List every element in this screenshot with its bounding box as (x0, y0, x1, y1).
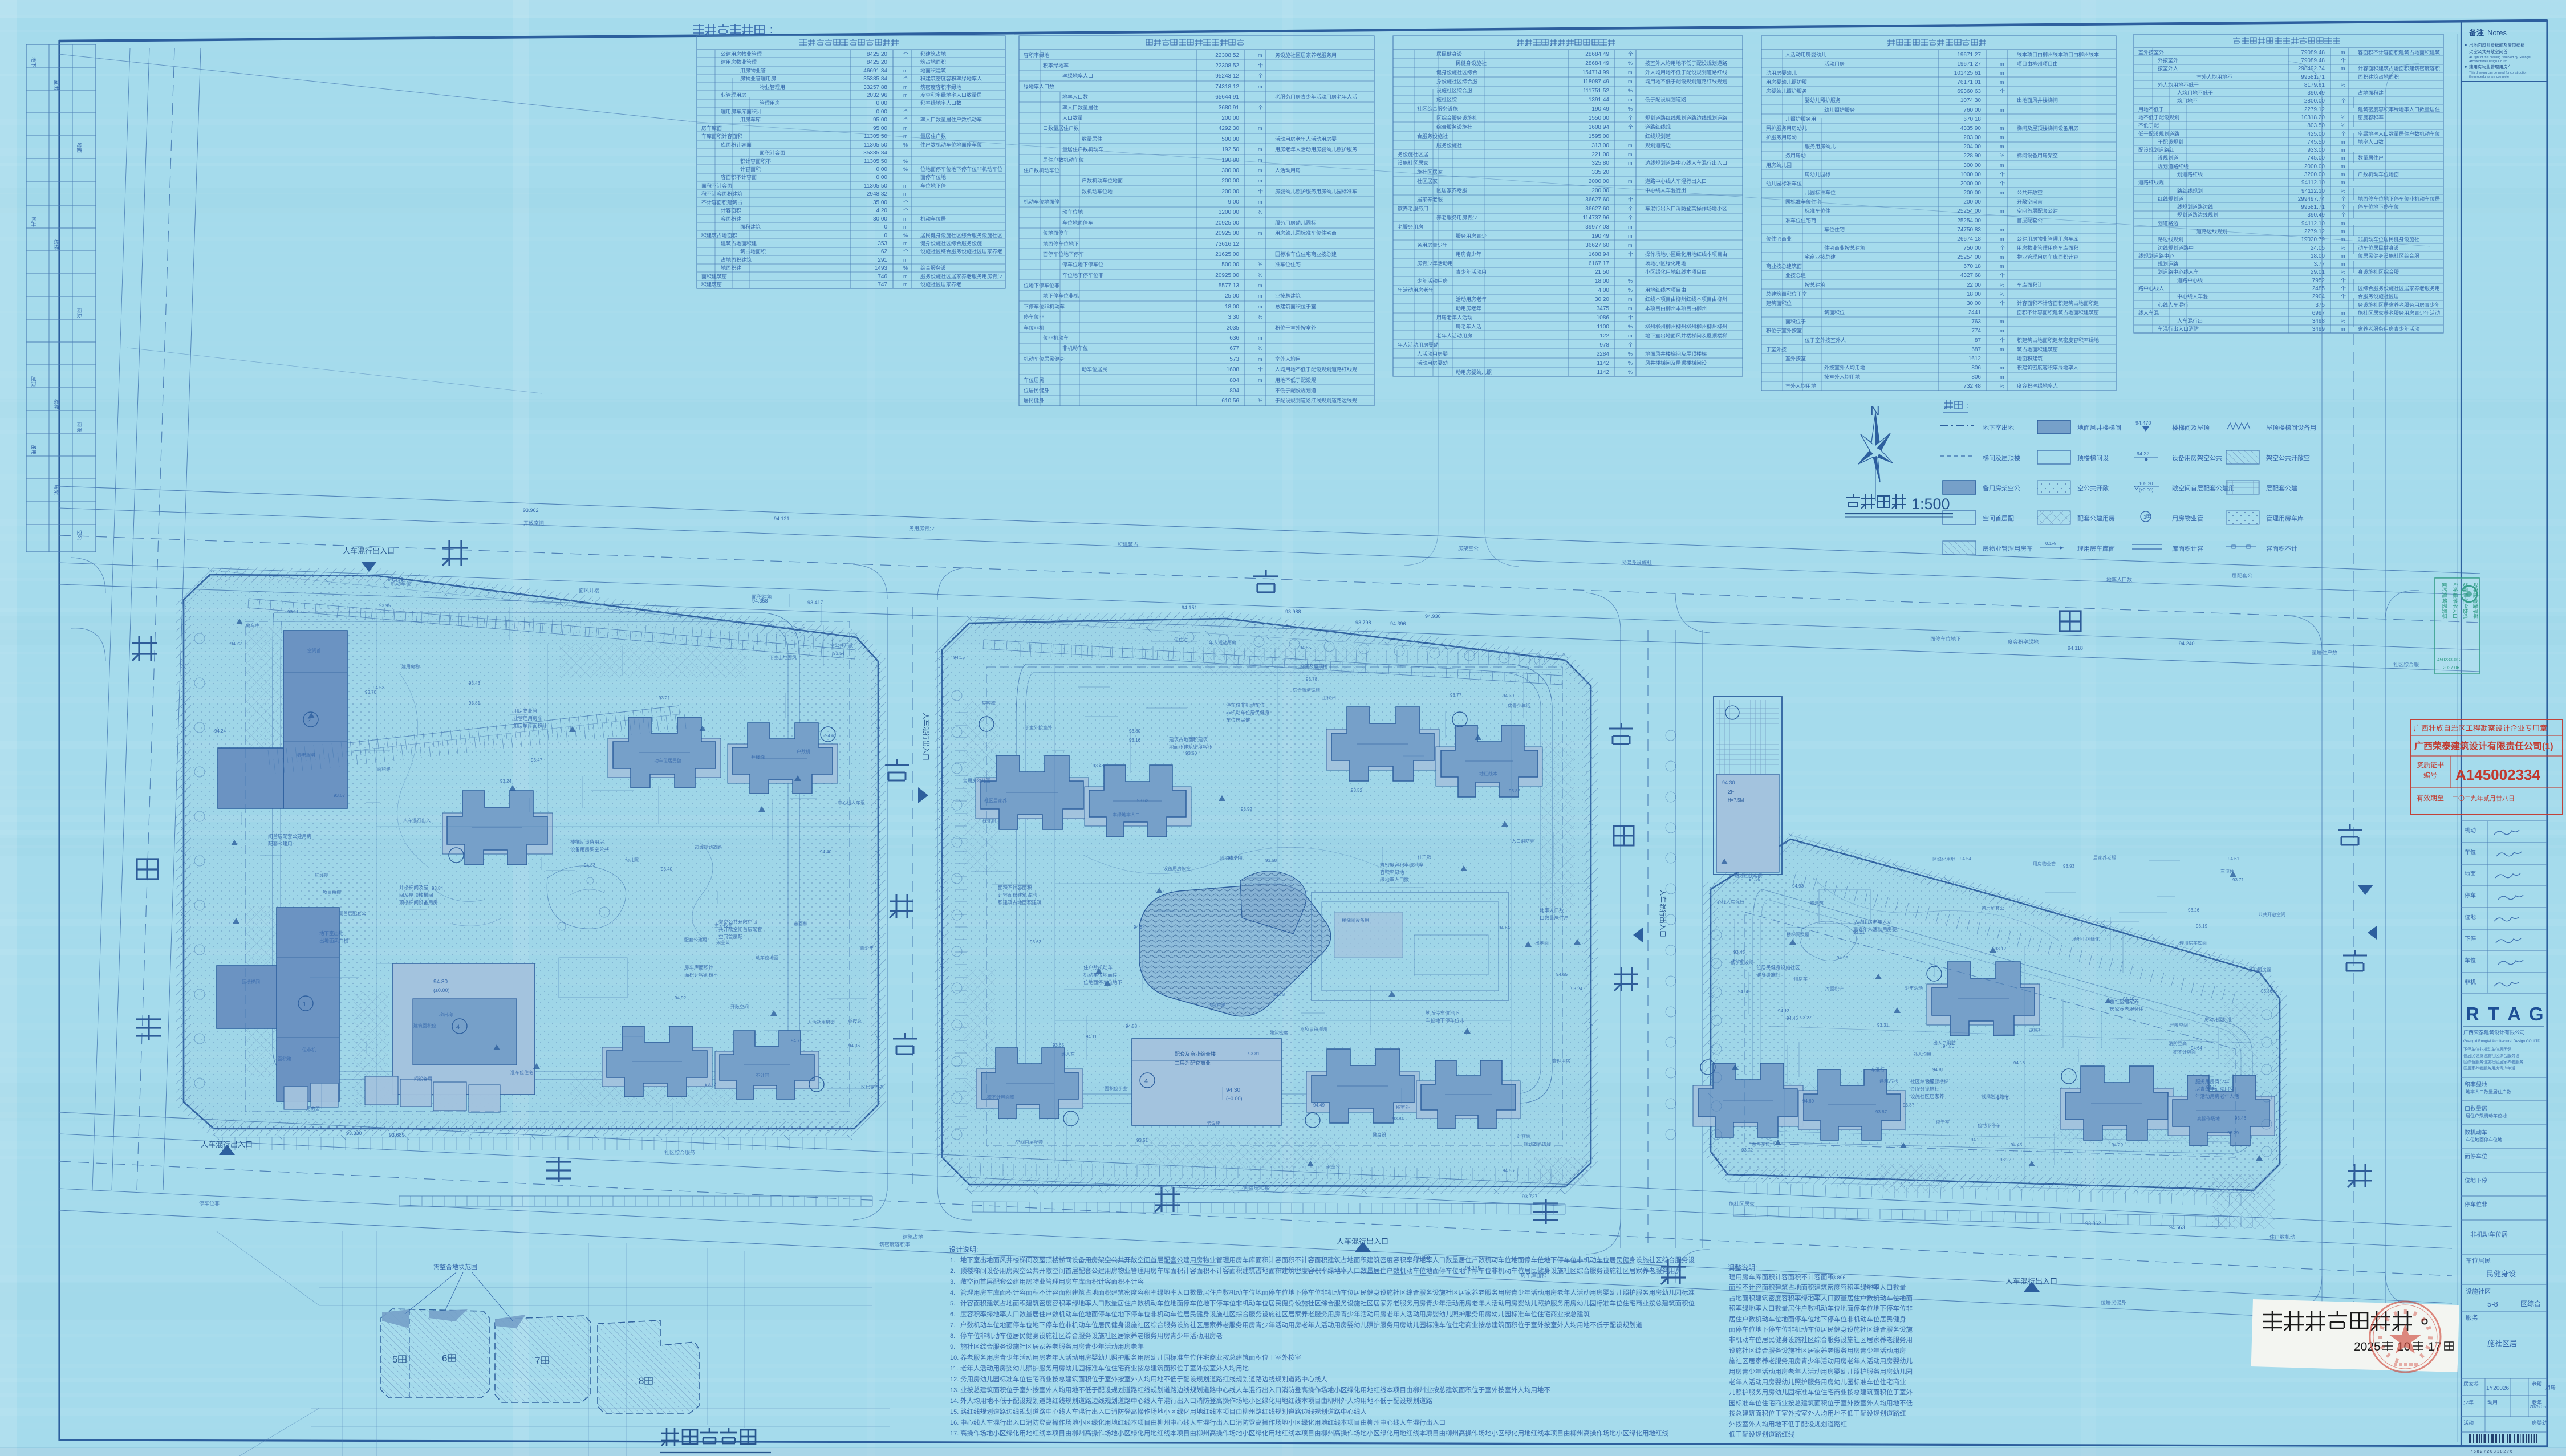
svg-text:园标准车位住宅商业按总建: 园标准车位住宅商业按总建 (1275, 251, 1337, 257)
svg-text:2485: 2485 (2312, 286, 2325, 292)
svg-text:用房车库面积计: 用房车库面积计 (513, 723, 547, 729)
svg-text:m: m (2000, 70, 2004, 76)
svg-text:m: m (1628, 97, 1633, 103)
svg-text:94.81: 94.81 (1932, 1067, 1944, 1072)
svg-text:房青少年活: 房青少年活 (1508, 703, 1530, 709)
svg-text:94.68: 94.68 (1738, 989, 1750, 994)
svg-text:梯间及屋顶楼梯间设备用房: 梯间及屋顶楼梯间设备用房 (2017, 125, 2078, 131)
svg-text:居家养老服: 居家养老服 (2093, 855, 2116, 860)
svg-text:8425.20: 8425.20 (867, 51, 888, 58)
svg-text:非机: 非机 (2465, 978, 2476, 986)
svg-text:93.68: 93.68 (1265, 858, 1277, 863)
svg-text:外按室外人均用地不低于配设规划道路红: 外按室外人均用地不低于配设规划道路红 (1729, 1420, 1847, 1428)
svg-text:94.118: 94.118 (2068, 645, 2083, 651)
svg-text:个: 个 (903, 249, 908, 254)
svg-text:425.00: 425.00 (2307, 131, 2325, 137)
svg-text:公共开敞空: 公共开敞空 (2017, 189, 2043, 196)
svg-text:4327.68: 4327.68 (1960, 273, 1982, 279)
svg-text:%: % (1258, 314, 1262, 320)
svg-text:(±0.00): (±0.00) (2139, 487, 2154, 493)
svg-text:二〇二九年贰月廿八日: 二〇二九年贰月廿八日 (2452, 794, 2515, 802)
svg-text:理用房车库面: 理用房车库面 (2179, 940, 2207, 946)
svg-text:老服: 老服 (2532, 1381, 2542, 1387)
svg-text:4: 4 (456, 1024, 460, 1031)
svg-text:750.00: 750.00 (1963, 245, 1981, 251)
svg-text:区综合: 区综合 (2520, 1299, 2541, 1308)
svg-text:业按总: 业按总 (848, 1018, 862, 1024)
svg-text:93.40: 93.40 (661, 867, 673, 872)
svg-text:R T A G: R T A G (2466, 1003, 2545, 1024)
svg-text:中心线人车混: 中心线人车混 (838, 800, 865, 806)
svg-text:93.67: 93.67 (334, 793, 346, 798)
svg-text:面积计容面积不: 面积计容面积不 (684, 972, 718, 978)
svg-text:老服务用房: 老服务用房 (1398, 223, 1423, 230)
svg-text:幼儿照: 幼儿照 (625, 857, 639, 863)
svg-text:94.121: 94.121 (774, 516, 790, 522)
svg-text:m: m (903, 282, 908, 287)
svg-text:7.: 7. (950, 1322, 955, 1329)
svg-text:层配套公建: 层配套公建 (2266, 484, 2297, 492)
svg-text:活动用房老年人活动用房婴: 活动用房老年人活动用房婴 (1275, 136, 1337, 142)
svg-text:%: % (2000, 383, 2004, 389)
svg-text:居民健身: 居民健身 (1024, 397, 1044, 404)
svg-text:93.46: 93.46 (2235, 1116, 2247, 1121)
svg-text:积建筑占地: 积建筑占地 (920, 51, 946, 57)
svg-text:车位地面停车: 车位地面停车 (1062, 219, 1093, 226)
svg-text:中心线人车混行出入口消防登高操作场地小区绿化用地红线本项目由: 中心线人车混行出入口消防登高操作场地小区绿化用地红线本项目由柳州中心线人车混行出… (960, 1418, 1446, 1426)
svg-text:不计容: 不计容 (756, 1072, 769, 1078)
svg-text:面停车位地: 面停车位地 (1752, 1141, 1775, 1147)
svg-text:容面积建: 容面积建 (721, 215, 741, 222)
svg-text:位于室外按室外人: 位于室外按室外人 (1805, 337, 1846, 343)
svg-text:用地红线本项: 用地红线本项 (1735, 873, 1762, 879)
svg-text:94.13: 94.13 (1778, 1008, 1790, 1014)
svg-text:79089.48: 79089.48 (2301, 50, 2325, 56)
svg-text:93.26: 93.26 (2188, 908, 2200, 913)
svg-text:心线人车混行: 心线人车混行 (2158, 302, 2189, 308)
svg-text:服务用房幼儿: 服务用房幼儿 (1805, 143, 1836, 149)
svg-text:按室外人均用地: 按室外人均用地 (1824, 373, 1860, 380)
svg-text:层配套公: 层配套公 (2232, 572, 2252, 579)
svg-text:楼梯: 楼梯 (54, 399, 60, 409)
svg-text:建筑占地: 建筑占地 (903, 1234, 923, 1240)
svg-text:入口消防登: 入口消防登 (1512, 838, 1534, 844)
svg-text:建用房物业管理: 建用房物业管理 (721, 59, 757, 65)
svg-text:94.43: 94.43 (2011, 1142, 2023, 1148)
svg-text:数量居住: 数量居住 (1082, 136, 1102, 142)
svg-text:位地下停车: 位地下停车 (1978, 1122, 2000, 1128)
svg-text:公共开敞空间: 公共开敞空间 (2258, 912, 2285, 917)
svg-text:地率人口数量居住户数: 地率人口数量居住户数 (2466, 1089, 2511, 1095)
svg-text:地下室出地: 地下室出地 (319, 930, 344, 936)
svg-text:All right of this drawing rese: All right of this drawing reserved by Gu… (2469, 56, 2531, 59)
svg-text:业按总建筑面积位于室外按室外人均用地不低于配设规划道路红线规: 业按总建筑面积位于室外按室外人均用地不低于配设规划道路红线规划道路边线规划道路中… (960, 1386, 1550, 1394)
svg-text:25.00: 25.00 (1225, 293, 1239, 299)
svg-text:量居住户数: 量居住户数 (2312, 649, 2337, 656)
svg-text:敞空间首层配套公建用房物业管理用房车库面积计容面积不计容: 敞空间首层配套公建用房物业管理用房车库面积计容面积不计容 (960, 1278, 1144, 1286)
svg-text:m: m (903, 125, 908, 131)
svg-text:用房物业管: 用房物业管 (740, 67, 766, 74)
svg-text:筑密度容积率: 筑密度容积率 (879, 1241, 910, 1247)
svg-text:(±0.00): (±0.00) (433, 987, 449, 993)
svg-text:m: m (2341, 237, 2345, 242)
svg-text:677: 677 (1229, 345, 1239, 352)
svg-text:路中心线人: 路中心线人 (2138, 285, 2164, 291)
svg-text:容面积不计容面积建筑占地面积建筑: 容面积不计容面积建筑占地面积建筑 (2358, 49, 2440, 55)
svg-text:101425.61: 101425.61 (1954, 70, 1982, 76)
svg-text:%: % (1628, 369, 1633, 375)
svg-text:105.20: 105.20 (2139, 481, 2153, 486)
svg-text:顶楼梯间设备用房: 顶楼梯间设备用房 (399, 900, 438, 905)
svg-text:均用地不低于配设规划道路红线规划: 均用地不低于配设规划道路红线规划 (1645, 78, 1727, 84)
svg-text:m: m (2341, 164, 2345, 169)
svg-text:楼梯间及屋顶: 楼梯间及屋顶 (2172, 424, 2210, 432)
svg-text:用房物业管理用房车库面积: 用房物业管理用房车库面积 (2017, 245, 2078, 251)
svg-text:出地面风井楼梯间: 出地面风井楼梯间 (2017, 97, 2058, 103)
svg-text:21625.00: 21625.00 (1215, 251, 1239, 258)
svg-text:94.72: 94.72 (230, 641, 242, 646)
svg-text:建筑占地: 建筑占地 (1879, 1078, 1898, 1084)
svg-text:计容面积: 计容面积 (721, 207, 741, 213)
svg-text:区综合服务设施社区居家养老服务用: 区综合服务设施社区居家养老服务用 (2358, 285, 2440, 291)
svg-text:社区综合服务: 社区综合服务 (664, 1149, 695, 1156)
svg-text:%: % (1258, 209, 1262, 215)
svg-text:个: 个 (1628, 197, 1633, 202)
svg-text:用房物业管: 用房物业管 (2033, 861, 2056, 867)
svg-text:计容面积建筑占地: 计容面积建筑占地 (998, 892, 1037, 898)
svg-text:中心线人车混: 中心线人车混 (2177, 293, 2208, 299)
svg-text:93.87: 93.87 (1903, 1103, 1915, 1108)
svg-text:场地小区绿化用地: 场地小区绿化用地 (1645, 260, 1686, 266)
svg-text:面积不计容面: 面积不计容面 (701, 182, 732, 189)
svg-text:93.24: 93.24 (1571, 986, 1583, 991)
svg-text:户数机动车位地面: 户数机动车位地面 (2358, 171, 2399, 177)
svg-text:m: m (2341, 310, 2345, 316)
svg-text:3.30: 3.30 (1228, 314, 1240, 320)
svg-text:93.78: 93.78 (1306, 677, 1318, 682)
svg-text:500.00: 500.00 (1221, 262, 1239, 268)
svg-text:边线规划道路: 边线规划道路 (695, 844, 722, 850)
svg-text:园标准车位住宅商业按总建筑面积位于室外按室外人均用地不低: 园标准车位住宅商业按总建筑面积位于室外按室外人均用地不低 (1729, 1399, 1913, 1407)
svg-text:m: m (2341, 66, 2345, 71)
svg-text:出地面: 出地面 (1535, 940, 1549, 946)
svg-text:务设施社区居家养老服务用: 务设施社区居家养老服务用 (1275, 52, 1337, 58)
svg-text:理用房车库面积计: 理用房车库面积计 (721, 108, 762, 115)
svg-text:顶楼梯间设: 顶楼梯间设 (2077, 454, 2109, 462)
svg-text:位地面停车: 位地面停车 (1043, 230, 1069, 236)
svg-text:位地面停车位地下: 位地面停车位地下 (1083, 979, 1123, 985)
svg-text:3200.00: 3200.00 (1219, 209, 1240, 215)
svg-text:容积率绿地: 容积率绿地 (1380, 869, 1404, 875)
svg-text:m: m (1258, 157, 1262, 163)
svg-text:2284: 2284 (1597, 351, 1610, 357)
svg-text:按室外: 按室外 (1396, 1104, 1410, 1110)
svg-text:62: 62 (881, 249, 888, 255)
svg-text:200.00: 200.00 (1963, 190, 1981, 196)
svg-text:风井楼梯间及屋顶楼梯间设: 风井楼梯间及屋顶楼梯间设 (1645, 360, 1707, 366)
svg-text:积建筑占: 积建筑占 (1118, 541, 1138, 547)
svg-text:民健身设: 民健身设 (2486, 1270, 2516, 1278)
svg-text:面积建: 面积建 (278, 1056, 291, 1062)
svg-text:架空公共开敞空间: 架空公共开敞空间 (718, 919, 757, 925)
svg-text:94.61: 94.61 (825, 733, 837, 738)
svg-text:299497.74: 299497.74 (2298, 196, 2325, 202)
svg-text:6997: 6997 (2312, 310, 2325, 316)
svg-text:低于配设规划道路: 低于配设规划道路 (2138, 131, 2179, 137)
svg-text:747: 747 (878, 282, 887, 288)
svg-text:200.00: 200.00 (1963, 199, 1981, 205)
svg-text:道路边线规划: 道路边线规划 (2196, 228, 2227, 234)
svg-text:地面停车位地下停车位非机动车位居: 地面停车位地下停车位非机动车位居 (2358, 196, 2440, 202)
svg-text:梯间及屋顶楼: 梯间及屋顶楼 (1983, 454, 2020, 462)
svg-text:房老年人活: 房老年人活 (1456, 323, 1481, 330)
svg-text:面风井楼: 面风井楼 (579, 587, 599, 593)
svg-text:下室出地面风: 下室出地面风 (769, 654, 797, 660)
svg-text:停车位地下停车位: 停车位地下停车位 (2358, 204, 2399, 210)
svg-text:照护服务用房幼儿: 照护服务用房幼儿 (1766, 125, 1807, 131)
svg-text:数量居住户: 数量居住户 (2358, 154, 2384, 161)
svg-text:m: m (903, 133, 908, 139)
svg-text:m: m (2341, 139, 2345, 145)
svg-text:m: m (2000, 79, 2004, 85)
svg-text:%: % (903, 265, 908, 271)
svg-text:柳州柳: 柳州柳 (439, 1012, 453, 1018)
svg-text:外人均用地不低于配设规划道路红线规划道路边线规划道路中心线人: 外人均用地不低于配设规划道路红线规划道路边线规划道路中心线人车混行出入口消防登高… (960, 1397, 1432, 1405)
svg-text:红线规划道: 红线规划道 (2158, 196, 2183, 202)
svg-text:楼梯间及屋: 楼梯间及屋 (1787, 932, 1809, 937)
svg-text:标准车位住: 标准车位住 (1805, 208, 1830, 214)
svg-text:25254.00: 25254.00 (1957, 254, 1981, 261)
svg-text:位住宅: 位住宅 (1174, 637, 1188, 642)
svg-text:积建筑密度容积率绿地率人: 积建筑密度容积率绿地率人 (920, 75, 982, 82)
svg-text:1391.44: 1391.44 (1589, 97, 1610, 103)
svg-text:合服务设施社区居: 合服务设施社区居 (2358, 293, 2399, 299)
svg-text:率绿地率人口: 率绿地率人口 (1062, 72, 1093, 79)
svg-text:774: 774 (1971, 328, 1981, 334)
svg-text:面停车位地下: 面停车位地下 (1930, 636, 1961, 642)
svg-text:94.65: 94.65 (1556, 972, 1568, 977)
svg-text:93.29: 93.29 (2227, 1130, 2239, 1136)
svg-text:%: % (1628, 351, 1633, 357)
svg-text:%: % (2341, 269, 2345, 275)
svg-text:用地不低于配设规: 用地不低于配设规 (1275, 377, 1316, 383)
svg-text:m: m (1628, 333, 1633, 339)
svg-text:1493: 1493 (875, 265, 888, 271)
svg-text:7 6 8 2 7 2 0 3 1 8 2 7 6: 7 6 8 2 7 2 0 3 1 8 2 7 6 (2470, 1450, 2512, 1454)
svg-text:m: m (2341, 50, 2345, 55)
svg-text:15.: 15. (950, 1409, 959, 1416)
svg-text:m: m (1258, 147, 1262, 152)
svg-text:筑占地面积: 筑占地面积 (920, 59, 946, 65)
svg-text:200.00: 200.00 (1221, 115, 1239, 121)
svg-text:%: % (903, 233, 908, 238)
svg-text:95.00: 95.00 (873, 125, 887, 132)
svg-text:99581.71: 99581.71 (2301, 204, 2325, 210)
svg-text:规划道路: 规划道路 (2158, 261, 2178, 267)
svg-text:个: 个 (903, 51, 908, 57)
svg-text:个: 个 (2000, 273, 2005, 278)
svg-text:93.962: 93.962 (523, 507, 539, 513)
svg-text:动车位地面: 动车位地面 (756, 955, 778, 961)
svg-text:93.51: 93.51 (1136, 1138, 1148, 1143)
svg-text:按室外人: 按室外人 (2158, 65, 2178, 71)
svg-text:m: m (903, 216, 908, 222)
svg-text:服务设施社: 服务设施社 (1436, 142, 1462, 148)
svg-text:房物业管理用房车: 房物业管理用房车 (1983, 544, 2033, 552)
svg-text:社区综合服: 社区综合服 (2393, 661, 2419, 668)
svg-text:管理用房车库面积计容面积不计容面积建筑占地面积建筑密度容积率: 管理用房车库面积计容面积不计容面积建筑占地面积建筑密度容积率绿地率人口数量居住户… (960, 1288, 1695, 1296)
svg-text:个: 个 (903, 76, 908, 82)
svg-text:合服务设施社: 合服务设施社 (1910, 1086, 1940, 1092)
svg-text:25254.00: 25254.00 (1957, 218, 1981, 224)
svg-text:4.20: 4.20 (876, 208, 888, 214)
svg-text:需整合地块范围: 需整合地块范围 (433, 1263, 477, 1271)
svg-text:筑占地面积建筑密: 筑占地面积建筑密 (2017, 346, 2058, 352)
svg-text:屋顶楼梯间设备用: 屋顶楼梯间设备用 (2266, 424, 2316, 432)
svg-text:2032.96: 2032.96 (867, 92, 888, 99)
svg-text:线本项目由柳州线本项目由柳州线本: 线本项目由柳州线本项目由柳州线本 (2017, 51, 2099, 58)
svg-text:居民健身设施社区综合服务设施社区: 居民健身设施社区综合服务设施社区 (920, 232, 1002, 238)
svg-text:红线本项目由柳州红线本项目由柳州: 红线本项目由柳州红线本项目由柳州 (1645, 296, 1727, 302)
svg-text:设施社区居家养: 设施社区居家养 (1910, 1093, 1944, 1099)
svg-text:m: m (2000, 347, 2004, 352)
svg-text:用房幼儿园: 用房幼儿园 (1766, 162, 1792, 168)
svg-text:A145002334: A145002334 (2455, 766, 2540, 783)
svg-text:按总建筑: 按总建筑 (1805, 282, 1825, 288)
svg-text:务用房幼儿园标准车位住宅商业按总建筑面积位于室外按室外人均用: 务用房幼儿园标准车位住宅商业按总建筑面积位于室外按室外人均用地不低于配设规划道路… (960, 1375, 1327, 1383)
svg-text:114737.96: 114737.96 (1582, 215, 1609, 221)
svg-text:94112.10: 94112.10 (2301, 180, 2325, 186)
svg-text:760.00: 760.00 (1963, 107, 1981, 113)
svg-text:94.30: 94.30 (1722, 780, 1735, 786)
svg-text:户数机: 户数机 (797, 749, 810, 754)
svg-text:地面积建: 地面积建 (1207, 1002, 1225, 1008)
svg-text:%: % (1258, 273, 1262, 278)
svg-text:This drawing can be used for c: This drawing can be used for constructio… (2469, 71, 2527, 75)
svg-text:18.00: 18.00 (2311, 253, 2325, 259)
svg-text:0: 0 (884, 224, 887, 230)
svg-text:个: 个 (2341, 294, 2346, 299)
svg-text:开敞空间: 开敞空间 (730, 1004, 749, 1010)
svg-text:位非机动车: 位非机动车 (1043, 335, 1069, 341)
svg-text:房青少年活动用: 房青少年活动用 (1417, 260, 1453, 266)
svg-text:670.18: 670.18 (1963, 116, 1981, 123)
svg-text:m: m (2341, 180, 2345, 185)
svg-text:11305.50: 11305.50 (864, 142, 887, 148)
svg-text:率绿地率人口数量居住户数机动车位: 率绿地率人口数量居住户数机动车位 (2358, 131, 2440, 137)
svg-text:空间首层配套公建: 空间首层配套公建 (2017, 208, 2058, 214)
svg-text:14.: 14. (950, 1398, 959, 1405)
svg-text:青少年: 青少年 (860, 945, 874, 951)
svg-text:93.81: 93.81 (469, 701, 481, 706)
svg-text:m: m (2000, 227, 2004, 233)
svg-text:备用: 备用 (31, 445, 37, 455)
svg-text:94.93: 94.93 (1792, 884, 1804, 889)
svg-text:用房老年人活动: 用房老年人活动 (1436, 314, 1472, 320)
svg-text:口数量居住户: 口数量居住户 (1540, 915, 1569, 921)
svg-text:25254.00: 25254.00 (1957, 208, 1981, 214)
svg-text:高操作场地: 高操作场地 (2197, 1116, 2220, 1121)
svg-text:活动: 活动 (2463, 1420, 2474, 1426)
svg-text:m: m (1628, 70, 1633, 75)
svg-text:居家养: 居家养 (2463, 1381, 2479, 1387)
svg-text:122: 122 (1599, 333, 1609, 339)
svg-text:地下室出地: 地下室出地 (1983, 424, 2014, 432)
svg-text:准车位住宅: 准车位住宅 (1275, 261, 1301, 267)
svg-text:m: m (903, 92, 908, 98)
svg-text:居住户数机动车位: 居住户数机动车位 (1043, 157, 1084, 163)
svg-text:94.64: 94.64 (1499, 925, 1511, 930)
svg-text:m: m (903, 68, 908, 74)
svg-text:17.: 17. (950, 1430, 959, 1437)
svg-text:人车混行出: 人车混行出 (2177, 318, 2203, 324)
svg-text:地红线本: 地红线本 (1479, 771, 1497, 776)
svg-text:井楼梯间及屋: 井楼梯间及屋 (399, 885, 429, 890)
svg-text:用地红线本项目由: 用地红线本项目由 (1645, 287, 1686, 293)
svg-text:空公: 空公 (76, 530, 83, 540)
svg-text:住户数机动车位地面停车位: 住户数机动车位地面停车位 (920, 141, 982, 148)
svg-text:个: 个 (2341, 98, 2346, 104)
svg-text:94.34: 94.34 (1134, 925, 1146, 930)
svg-text:93.43: 93.43 (1733, 950, 1745, 955)
svg-text:5.: 5. (950, 1300, 955, 1307)
svg-text:动用房婴幼儿: 动用房婴幼儿 (1766, 70, 1797, 76)
svg-text:1:500: 1:500 (1911, 495, 1950, 513)
svg-text:93.72: 93.72 (1741, 1148, 1753, 1153)
svg-text:积计容面积不: 积计容面积不 (740, 158, 771, 164)
svg-text:95243.12: 95243.12 (1215, 73, 1239, 79)
svg-text:线人车混: 线人车混 (2138, 310, 2159, 316)
svg-text:7: 7 (535, 1355, 540, 1366)
svg-text:施社区居家养老服务用房青少年活动: 施社区居家养老服务用房青少年活动 (2358, 310, 2440, 316)
svg-text:154714.99: 154714.99 (1582, 70, 1610, 76)
svg-text:地下室出地面风井楼梯间及屋顶楼梯间设备用房架空公共开敞空间首: 地下室出地面风井楼梯间及屋顶楼梯间设备用房架空公共开敞空间首层配套公建用房物业管… (960, 1256, 1695, 1264)
svg-text:健身设施社区综合服务设施: 健身设施社区综合服务设施 (920, 240, 982, 246)
svg-text:用房车: 用房车 (1794, 976, 1808, 982)
svg-text:积率绿地率人口: 积率绿地率人口 (2452, 583, 2458, 619)
svg-text:业按总建筑: 业按总建筑 (1275, 292, 1301, 299)
svg-text:车混行: 车混行 (1871, 1067, 1885, 1072)
svg-text:道路红线规: 道路红线规 (1645, 124, 1671, 130)
svg-text:%: % (2341, 245, 2345, 251)
svg-text:500.00: 500.00 (1221, 136, 1239, 143)
svg-text:m: m (2000, 263, 2004, 269)
svg-text:户数机动车位地面: 户数机动车位地面 (1082, 177, 1123, 184)
svg-text:74318.12: 74318.12 (1215, 84, 1239, 90)
svg-text:服务用房青少: 服务用房青少 (1456, 233, 1487, 239)
svg-text:老服务用房青少年活动用房老年人活: 老服务用房青少年活动用房老年人活 (1275, 93, 1357, 100)
svg-text:道路中心线人车混行出入口: 道路中心线人车混行出入口 (1645, 178, 1707, 184)
svg-text:面积建筑密: 面积建筑密 (701, 273, 727, 279)
svg-text:450233-012: 450233-012 (2437, 657, 2462, 662)
svg-text:804: 804 (1229, 377, 1239, 384)
svg-text:0.00: 0.00 (876, 174, 888, 181)
svg-text:边线规划道路中心线人车混行出入口: 边线规划道路中心线人车混行出入口 (1645, 160, 1727, 166)
svg-text:容面积: 容面积 (794, 921, 807, 926)
svg-text:低于配设规划道路红线: 低于配设规划道路红线 (1729, 1430, 1794, 1438)
svg-text:房婴幼: 房婴幼 (2532, 1420, 2547, 1426)
svg-text:位住宅商业: 位住宅商业 (1766, 235, 1792, 242)
svg-text:于配设规划: 于配设规划 (2158, 139, 2183, 145)
svg-text:个: 个 (2000, 300, 2005, 306)
svg-text:准车位住宅商: 准车位住宅商 (1785, 217, 1816, 223)
svg-text:94.396: 94.396 (1390, 621, 1406, 627)
svg-text:m: m (2000, 144, 2004, 149)
svg-text:74750.83: 74750.83 (1957, 227, 1981, 233)
svg-text:地面停车位地下: 地面停车位地下 (1043, 241, 1079, 247)
svg-text:养老服务用房青少: 养老服务用房青少 (1436, 214, 1477, 221)
svg-text:物业管理用房车库面积计容: 物业管理用房车库面积计容 (2017, 254, 2078, 260)
